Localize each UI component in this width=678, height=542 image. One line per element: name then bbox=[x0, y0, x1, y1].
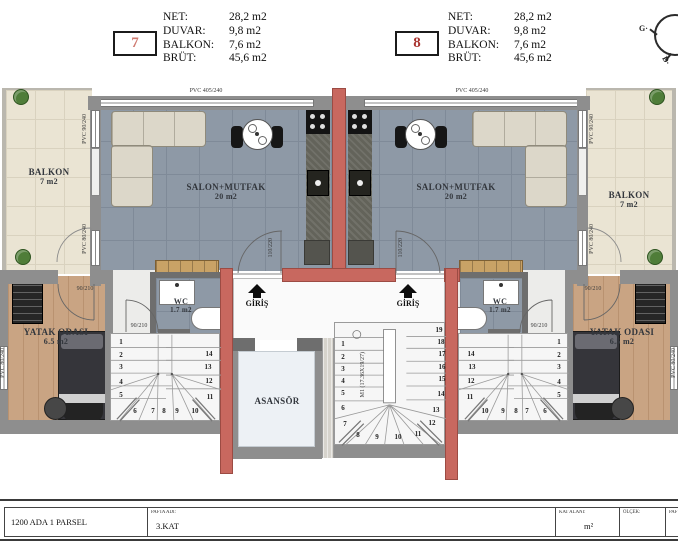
window-top-right bbox=[364, 99, 580, 107]
unit-7-number: 7 bbox=[131, 35, 139, 52]
door-size-label: 90/210 bbox=[585, 286, 602, 292]
kat-alani-value: m² bbox=[584, 521, 593, 531]
title-block-kat-alani-cell: KAT ALANI: m² bbox=[555, 507, 620, 537]
stair-step-number: 12 bbox=[429, 419, 436, 427]
door-size-label: 110/220 bbox=[398, 238, 404, 257]
stair-step-number: 15 bbox=[439, 375, 446, 383]
stair-step-number: 4 bbox=[119, 378, 123, 386]
room-label-wc-left: WC 1.7 m2 bbox=[170, 297, 192, 314]
door-size-label: 90/210 bbox=[131, 323, 148, 329]
stair-step-number: 7 bbox=[343, 420, 347, 428]
core-stair: 12345678910111213141516171819 bbox=[334, 322, 445, 445]
title-block-pafta-no-cell: PAF bbox=[665, 507, 678, 537]
title-block-pafta-cell: PAFTA ADI: 3.KAT bbox=[147, 507, 556, 537]
entrance-right-label: GİRİŞ bbox=[397, 299, 420, 308]
balcony-door-left bbox=[91, 148, 100, 196]
room-area: 20 m2 bbox=[416, 192, 495, 201]
stair-step-number: 14 bbox=[438, 390, 445, 398]
stair-step-number: 14 bbox=[206, 350, 213, 358]
stair-step-number: 17 bbox=[439, 350, 446, 358]
fridge-left bbox=[304, 240, 330, 265]
sofa-left-top bbox=[111, 111, 206, 147]
bed-footboard bbox=[59, 394, 105, 403]
spec-value: 7,6 m2 bbox=[514, 39, 552, 53]
bottom-wall-left bbox=[0, 420, 220, 434]
room-label-bedroom-left: YATAK ODASI 6.5 m2 bbox=[24, 327, 88, 346]
plate bbox=[421, 136, 430, 145]
title-block-olcek-cell: ÖLÇEK: bbox=[619, 507, 666, 537]
stair-step-number: 2 bbox=[119, 351, 123, 359]
stair-step-number: 7 bbox=[151, 407, 155, 415]
stair-step-number: 8 bbox=[356, 431, 360, 439]
stair-step-number: 4 bbox=[341, 377, 345, 385]
stair-step-number: 12 bbox=[468, 377, 475, 385]
stair-step-number: 6 bbox=[341, 404, 345, 412]
stair-step-number: 18 bbox=[438, 338, 445, 346]
wc-wall bbox=[522, 272, 528, 340]
unit-7-number-box: 7 bbox=[113, 31, 157, 56]
stair-step-number: 3 bbox=[557, 363, 561, 371]
fridge-right bbox=[348, 240, 374, 265]
room-area: 6.5 m2 bbox=[24, 337, 88, 346]
room-label-salon-left: SALON+MUTFAK 20 m2 bbox=[186, 182, 265, 201]
parcel-text: 1200 ADA 1 PARSEL bbox=[11, 517, 87, 527]
stair-step-number: 9 bbox=[501, 407, 505, 415]
entrance-arrow-icon bbox=[399, 284, 417, 298]
pafta-adi-label: PAFTA ADI: bbox=[151, 510, 176, 515]
stair-step-number: 1 bbox=[557, 338, 561, 346]
spec-label: BALKON: bbox=[448, 39, 514, 53]
door-size-label: 90/210 bbox=[531, 323, 548, 329]
core-wall-left bbox=[220, 268, 233, 474]
spec-label: BRÜT: bbox=[163, 52, 229, 66]
room-label-balkon-left: BALKON 7 m2 bbox=[29, 167, 70, 186]
entrance-arrow-icon bbox=[248, 284, 266, 298]
room-area: 1.7 m2 bbox=[170, 306, 192, 314]
stair-step-number: 10 bbox=[192, 407, 199, 415]
floor-plan-sheet: 7 NET:28,2 m2 DUVAR:9,8 m2 BALKON:7,6 m2… bbox=[0, 0, 678, 542]
stove-left bbox=[306, 110, 330, 134]
wardrobe-right bbox=[635, 277, 666, 324]
stool-left bbox=[44, 397, 67, 420]
spec-value: 7,6 m2 bbox=[229, 39, 267, 53]
bedroom-top-wall-right bbox=[620, 270, 672, 284]
wc-toilet-right bbox=[454, 307, 487, 330]
room-label-bedroom-right: YATAK ODASI 6.5 m2 bbox=[590, 327, 654, 346]
chair bbox=[435, 126, 447, 148]
room-name: WC bbox=[170, 297, 192, 306]
room-area: 1.7 m2 bbox=[489, 306, 511, 314]
elevator-lintel bbox=[297, 338, 322, 351]
room-name: YATAK ODASI bbox=[590, 327, 654, 337]
stair-step-number: 5 bbox=[119, 391, 123, 399]
title-block-rule bbox=[0, 499, 678, 501]
stair-step-number: 5 bbox=[557, 391, 561, 399]
stair-step-number: 1 bbox=[119, 338, 123, 346]
stair-step-number: 9 bbox=[375, 433, 379, 441]
door-size-label: 110/220 bbox=[268, 238, 274, 257]
spec-value: 45,6 m2 bbox=[229, 52, 267, 66]
stair-step-number: 10 bbox=[482, 407, 489, 415]
spec-value: 28,2 m2 bbox=[229, 11, 267, 25]
stair-step-number: 13 bbox=[469, 363, 476, 371]
plate bbox=[258, 136, 267, 145]
entrance-left-label: GİRİŞ bbox=[246, 299, 269, 308]
plant bbox=[647, 249, 663, 265]
spec-label: BRÜT: bbox=[448, 52, 514, 66]
spec-label: DUVAR: bbox=[448, 25, 514, 39]
room-name: WC bbox=[489, 297, 511, 306]
window-size-label: PVC 405/240 bbox=[456, 88, 489, 94]
plant bbox=[649, 89, 665, 105]
window-top-left bbox=[98, 99, 314, 107]
compass-icon: G· D· bbox=[640, 4, 678, 68]
spec-label: NET: bbox=[163, 11, 229, 25]
bottom-wall-right bbox=[458, 420, 678, 434]
window-size-label: PVC 90/240 bbox=[82, 114, 88, 144]
sofa-right-side bbox=[525, 145, 567, 207]
room-area: 7 m2 bbox=[609, 200, 650, 209]
table-dot bbox=[418, 132, 422, 136]
wardrobe-left bbox=[12, 277, 43, 324]
stair-step-number: 12 bbox=[206, 377, 213, 385]
elevator-lintel bbox=[230, 338, 255, 351]
elevator-wall bbox=[315, 338, 322, 459]
room-name: SALON+MUTFAK bbox=[416, 182, 495, 192]
stair-step-number: 7 bbox=[525, 407, 529, 415]
room-label-salon-right: SALON+MUTFAK 20 m2 bbox=[416, 182, 495, 201]
stair-step-number: 19 bbox=[436, 326, 443, 334]
unit-stair-right: 1234567891011121314 bbox=[458, 333, 568, 421]
room-name: BALKON bbox=[609, 190, 650, 200]
stair-step-number: 3 bbox=[341, 365, 345, 373]
window-size-label: PVC 80/240 bbox=[589, 224, 595, 254]
spec-label: NET: bbox=[448, 11, 514, 25]
wc-wall bbox=[150, 272, 223, 278]
window-size-label: PVC 80/240 bbox=[82, 224, 88, 254]
unit-8-number: 8 bbox=[413, 35, 421, 52]
window bbox=[578, 230, 587, 266]
unit-stair-left: 1234567891011121314 bbox=[110, 333, 220, 421]
stair-step-number: 2 bbox=[557, 351, 561, 359]
balcony-right-floor bbox=[586, 90, 672, 274]
sofa-right-top bbox=[472, 111, 567, 147]
room-label-balkon-right: BALKON 7 m2 bbox=[609, 190, 650, 209]
stair-step-number: 5 bbox=[341, 389, 345, 397]
spec-value: 9,8 m2 bbox=[229, 25, 267, 39]
core-wall-right bbox=[445, 268, 458, 480]
stove-right bbox=[348, 110, 372, 134]
stair-step-number: 11 bbox=[467, 393, 474, 401]
plant bbox=[13, 89, 29, 105]
hall-wall bbox=[282, 268, 396, 282]
shaft-wall-hatch bbox=[322, 338, 334, 458]
spec-value: 45,6 m2 bbox=[514, 52, 552, 66]
elevator-bottom-wall bbox=[228, 447, 322, 459]
room-area: 6.5 m2 bbox=[590, 337, 654, 346]
spec-label: DUVAR: bbox=[163, 25, 229, 39]
compass-circle bbox=[654, 14, 678, 56]
party-wall-center bbox=[332, 88, 346, 272]
window bbox=[91, 230, 100, 266]
pafta-no-label: PAF bbox=[669, 510, 677, 515]
window bbox=[578, 110, 587, 148]
stair-step-number: 10 bbox=[395, 433, 402, 441]
compass-west-label: G· bbox=[639, 24, 648, 33]
room-area: 7 m2 bbox=[29, 177, 70, 186]
elevator-door-gap bbox=[255, 340, 297, 349]
unit-8-specs: NET:28,2 m2 DUVAR:9,8 m2 BALKON:7,6 m2 B… bbox=[448, 11, 552, 66]
plant bbox=[15, 249, 31, 265]
title-block-parcel-cell: 1200 ADA 1 PARSEL bbox=[4, 507, 148, 537]
olcek-label: ÖLÇEK: bbox=[623, 510, 640, 515]
stair-step-number: 16 bbox=[439, 363, 446, 371]
stair-step-number: 6 bbox=[543, 407, 547, 415]
room-label-elevator: ASANSÖR bbox=[254, 396, 299, 406]
stair-step-number: 13 bbox=[205, 363, 212, 371]
table-dot bbox=[255, 132, 259, 136]
window-size-label: PVC 405/240 bbox=[190, 88, 223, 94]
wc-wall bbox=[455, 272, 528, 278]
pafta-adi-value: 3.KAT bbox=[156, 521, 179, 531]
stair-step-number: 4 bbox=[557, 378, 561, 386]
room-name: YATAK ODASI bbox=[24, 327, 88, 337]
spec-value: 28,2 m2 bbox=[514, 11, 552, 25]
stair-step-number: 11 bbox=[415, 430, 422, 438]
chair bbox=[231, 126, 243, 148]
stair-note-label: M1 (17.36X19/27) bbox=[360, 352, 366, 397]
window-size-label: PVC 80/240 bbox=[0, 348, 6, 378]
window-size-label: PVC 90/240 bbox=[589, 114, 595, 144]
spec-label: BALKON: bbox=[163, 39, 229, 53]
stool-right bbox=[611, 397, 634, 420]
room-name: BALKON bbox=[29, 167, 70, 177]
kat-alani-label: KAT ALANI: bbox=[559, 510, 585, 515]
balcony-door-right bbox=[578, 148, 587, 196]
window-size-label: PVC 80/240 bbox=[671, 348, 677, 378]
stair-step-number: 14 bbox=[468, 350, 475, 358]
balcony-rail bbox=[672, 88, 676, 276]
stair-step-number: 6 bbox=[133, 407, 137, 415]
stair-step-number: 1 bbox=[341, 340, 345, 348]
room-area: 20 m2 bbox=[186, 192, 265, 201]
door-size-label: 90/210 bbox=[77, 286, 94, 292]
sofa-left-side bbox=[111, 145, 153, 207]
stair-step-number: 8 bbox=[162, 407, 166, 415]
stair-step-number: 13 bbox=[433, 406, 440, 414]
stair-step-number: 3 bbox=[119, 363, 123, 371]
core-stair-bottom-wall bbox=[334, 445, 446, 458]
title-block-rule bbox=[0, 539, 678, 541]
window bbox=[91, 110, 100, 148]
wc-wall bbox=[150, 272, 156, 340]
stair-step-number: 2 bbox=[341, 353, 345, 361]
spec-value: 9,8 m2 bbox=[514, 25, 552, 39]
unit-8-number-box: 8 bbox=[395, 31, 439, 56]
compass-south-label: D· bbox=[660, 55, 672, 67]
bedroom-top-wall-left bbox=[6, 270, 58, 284]
room-label-wc-right: WC 1.7 m2 bbox=[489, 297, 511, 314]
room-name: SALON+MUTFAK bbox=[186, 182, 265, 192]
stair-step-number: 11 bbox=[207, 393, 214, 401]
stair-step-number: 8 bbox=[514, 407, 518, 415]
unit-7-specs: NET:28,2 m2 DUVAR:9,8 m2 BALKON:7,6 m2 B… bbox=[163, 11, 267, 66]
stair-step-number: 9 bbox=[175, 407, 179, 415]
